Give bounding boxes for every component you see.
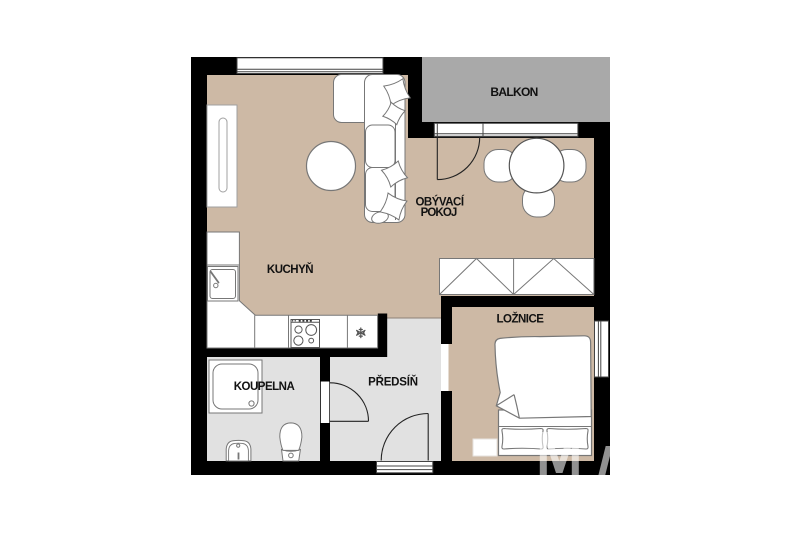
svg-text:POKOJ: POKOJ: [421, 207, 457, 219]
svg-text:LOŽNICE: LOŽNICE: [497, 312, 545, 325]
svg-text:KOUPELNA: KOUPELNA: [234, 381, 295, 393]
svg-text:KUCHYŇ: KUCHYŇ: [267, 263, 313, 276]
svg-text:BALKON: BALKON: [490, 85, 537, 99]
svg-text:PŘEDSÍŇ: PŘEDSÍŇ: [368, 376, 418, 389]
